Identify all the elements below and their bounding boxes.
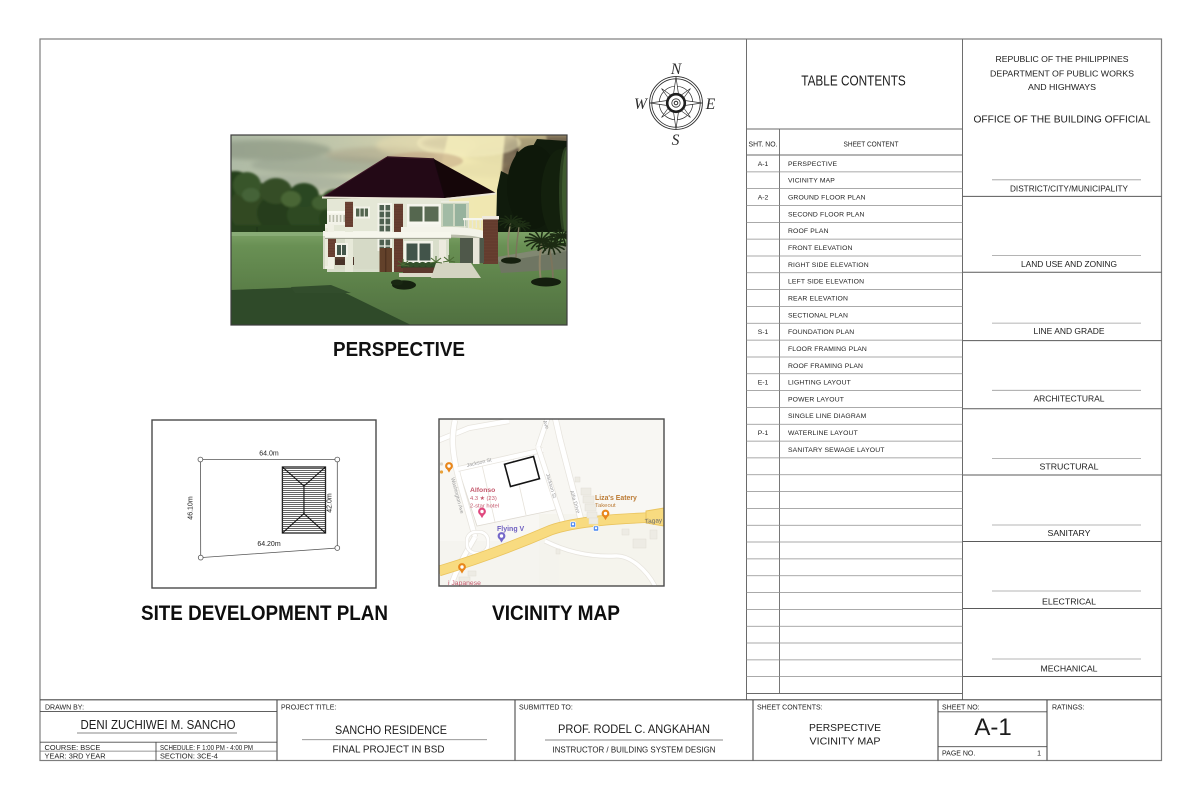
svg-text:VICINITY MAP: VICINITY MAP xyxy=(788,178,835,185)
svg-text:Takeout: Takeout xyxy=(595,503,616,509)
svg-text:S-1: S-1 xyxy=(758,329,769,336)
svg-text:INSTRUCTOR / BUILDING SYSTEM D: INSTRUCTOR / BUILDING SYSTEM DESIGN xyxy=(553,745,716,755)
svg-text:STRUCTURAL: STRUCTURAL xyxy=(1040,463,1099,472)
svg-text:WATERLINE LAYOUT: WATERLINE LAYOUT xyxy=(788,430,858,437)
svg-text:TABLE CONTENTS: TABLE CONTENTS xyxy=(801,73,906,89)
svg-text:DEPARTMENT OF PUBLIC WORKS: DEPARTMENT OF PUBLIC WORKS xyxy=(990,68,1134,78)
svg-text:P-1: P-1 xyxy=(758,430,769,437)
svg-text:SECTION: 3CE-4: SECTION: 3CE-4 xyxy=(160,752,218,761)
svg-text:VICINITY MAP: VICINITY MAP xyxy=(810,736,881,748)
svg-text:ELECTRICAL: ELECTRICAL xyxy=(1042,598,1096,607)
svg-text:ROOF PLAN: ROOF PLAN xyxy=(788,228,829,235)
svg-text:46.10m: 46.10m xyxy=(188,496,195,520)
svg-text:42.0m: 42.0m xyxy=(327,493,334,513)
svg-text:FOUNDATION PLAN: FOUNDATION PLAN xyxy=(788,329,854,336)
svg-text:LAND USE AND ZONING: LAND USE AND ZONING xyxy=(1021,260,1117,269)
svg-text:DRAWN BY:: DRAWN BY: xyxy=(45,704,84,711)
svg-text:64.0m: 64.0m xyxy=(259,451,279,458)
svg-text:YEAR: 3RD YEAR: YEAR: 3RD YEAR xyxy=(45,752,106,761)
svg-text:SITE DEVELOPMENT PLAN: SITE DEVELOPMENT PLAN xyxy=(141,602,388,625)
svg-text:E: E xyxy=(705,96,716,113)
svg-text:A-1: A-1 xyxy=(974,714,1011,741)
svg-text:FLOOR FRAMING PLAN: FLOOR FRAMING PLAN xyxy=(788,346,867,353)
svg-text:A-2: A-2 xyxy=(758,194,769,201)
svg-text:SUBMITTED TO:: SUBMITTED TO: xyxy=(519,704,573,711)
svg-text:SANITARY: SANITARY xyxy=(1048,529,1092,538)
svg-text:E-1: E-1 xyxy=(758,380,769,387)
svg-text:N: N xyxy=(670,61,683,78)
svg-text:PAGE NO.: PAGE NO. xyxy=(942,751,975,758)
svg-text:SHEET NO:: SHEET NO: xyxy=(942,704,980,711)
svg-text:MECHANICAL: MECHANICAL xyxy=(1041,665,1098,674)
svg-text:2-star hotel: 2-star hotel xyxy=(470,504,499,510)
svg-text:SHEET CONTENT: SHEET CONTENT xyxy=(844,142,900,149)
svg-text:DENI ZUCHIWEI M. SANCHO: DENI ZUCHIWEI M. SANCHO xyxy=(81,717,236,732)
svg-text:DISTRICT/CITY/MUNICIPALITY: DISTRICT/CITY/MUNICIPALITY xyxy=(1010,185,1129,194)
svg-text:ROOF FRAMING PLAN: ROOF FRAMING PLAN xyxy=(788,363,863,370)
svg-text:Alfonso: Alfonso xyxy=(470,487,495,494)
svg-text:SANITARY SEWAGE LAYOUT: SANITARY SEWAGE LAYOUT xyxy=(788,447,885,454)
svg-text:RATINGS:: RATINGS: xyxy=(1052,704,1085,711)
svg-text:SECTIONAL PLAN: SECTIONAL PLAN xyxy=(788,312,848,319)
svg-text:W: W xyxy=(634,96,649,113)
svg-text:VICINITY MAP: VICINITY MAP xyxy=(492,602,620,625)
svg-text:SHT. NO.: SHT. NO. xyxy=(749,142,778,149)
svg-text:PERSPECTIVE: PERSPECTIVE xyxy=(788,161,838,168)
svg-text:SINGLE LINE DIAGRAM: SINGLE LINE DIAGRAM xyxy=(788,413,867,420)
svg-text:64.20m: 64.20m xyxy=(257,541,281,548)
svg-text:Liza's Eatery: Liza's Eatery xyxy=(595,495,637,502)
svg-text:GROUND FLOOR PLAN: GROUND FLOOR PLAN xyxy=(788,194,866,201)
svg-text:Tagay: Tagay xyxy=(645,517,664,525)
svg-text:S: S xyxy=(672,132,680,149)
svg-text:SANCHO RESIDENCE: SANCHO RESIDENCE xyxy=(335,725,447,737)
svg-text:Flying V: Flying V xyxy=(497,526,525,533)
svg-text:PROJECT TITLE:: PROJECT TITLE: xyxy=(281,704,336,711)
svg-text:REPUBLIC OF THE PHILIPPINES: REPUBLIC OF THE PHILIPPINES xyxy=(996,54,1129,64)
svg-text:PERSPECTIVE: PERSPECTIVE xyxy=(809,722,881,734)
svg-text:LEFT SIDE ELEVATION: LEFT SIDE ELEVATION xyxy=(788,279,864,286)
svg-text:SHEET CONTENTS:: SHEET CONTENTS: xyxy=(757,704,823,711)
svg-text:LIGHTING LAYOUT: LIGHTING LAYOUT xyxy=(788,380,851,387)
svg-text:AND HIGHWAYS: AND HIGHWAYS xyxy=(1028,82,1096,92)
svg-text:REAR ELEVATION: REAR ELEVATION xyxy=(788,295,848,302)
svg-text:LINE AND GRADE: LINE AND GRADE xyxy=(1034,327,1106,336)
svg-text:4.3 ★ (23): 4.3 ★ (23) xyxy=(470,495,497,502)
svg-text:ARCHITECTURAL: ARCHITECTURAL xyxy=(1034,394,1105,403)
svg-text:OFFICE OF THE BUILDING OFFICIA: OFFICE OF THE BUILDING OFFICIAL xyxy=(974,115,1151,126)
svg-text:1: 1 xyxy=(1037,751,1041,758)
svg-text:SECOND FLOOR PLAN: SECOND FLOOR PLAN xyxy=(788,211,865,218)
svg-text:RIGHT SIDE ELEVATION: RIGHT SIDE ELEVATION xyxy=(788,262,869,269)
svg-text:PROF. RODEL C. ANGKAHAN: PROF. RODEL C. ANGKAHAN xyxy=(558,724,710,736)
svg-text:POWER LAYOUT: POWER LAYOUT xyxy=(788,396,844,403)
svg-text:PERSPECTIVE: PERSPECTIVE xyxy=(333,339,465,361)
svg-text:A-1: A-1 xyxy=(758,161,769,168)
svg-text:FINAL PROJECT IN BSD: FINAL PROJECT IN BSD xyxy=(333,745,445,756)
svg-text:FRONT ELEVATION: FRONT ELEVATION xyxy=(788,245,853,252)
